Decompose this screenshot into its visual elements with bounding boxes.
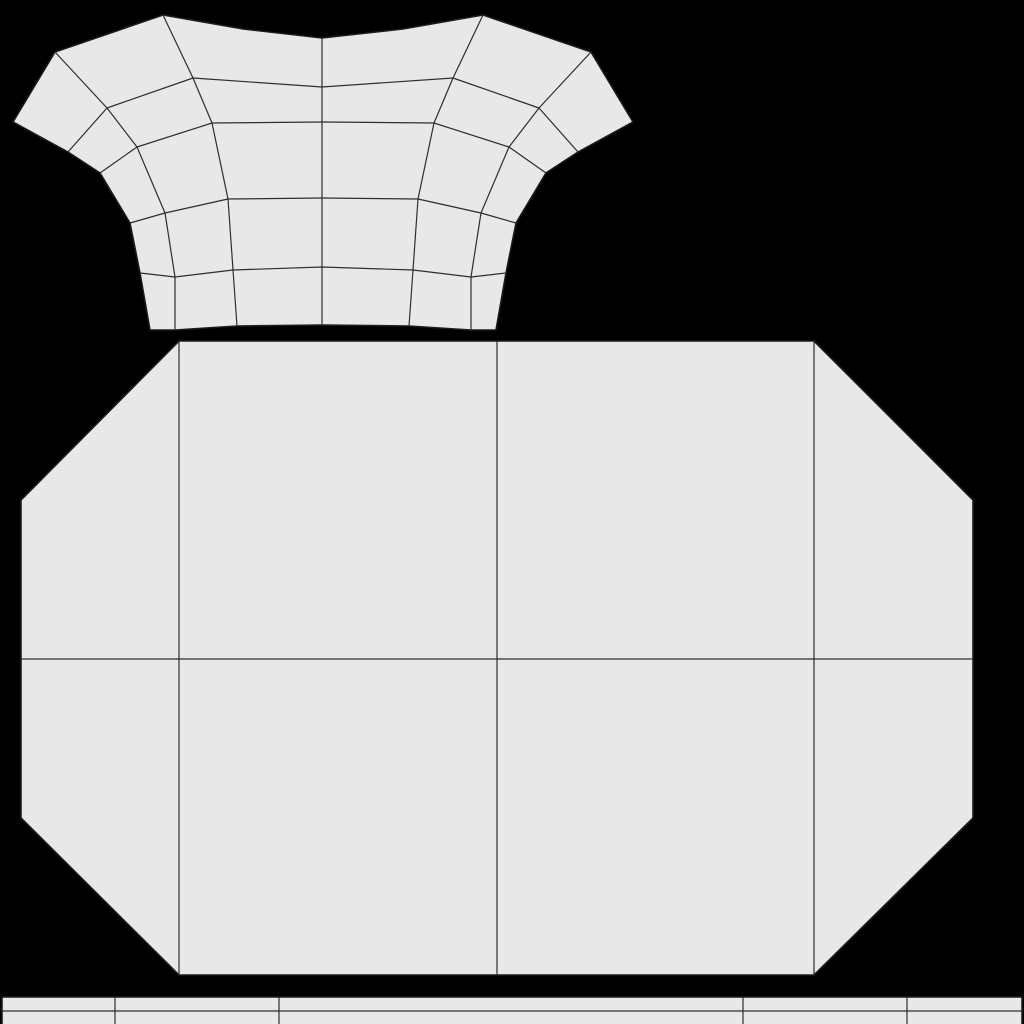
torso-uv-island-outline — [13, 15, 633, 330]
trim-strip-uv-island — [2, 997, 1022, 1024]
torso-uv-island — [13, 15, 633, 330]
uv-editor-canvas — [0, 0, 1024, 1024]
uv-layout-viewport — [0, 0, 1024, 1024]
body-panel-uv-island — [21, 341, 973, 975]
